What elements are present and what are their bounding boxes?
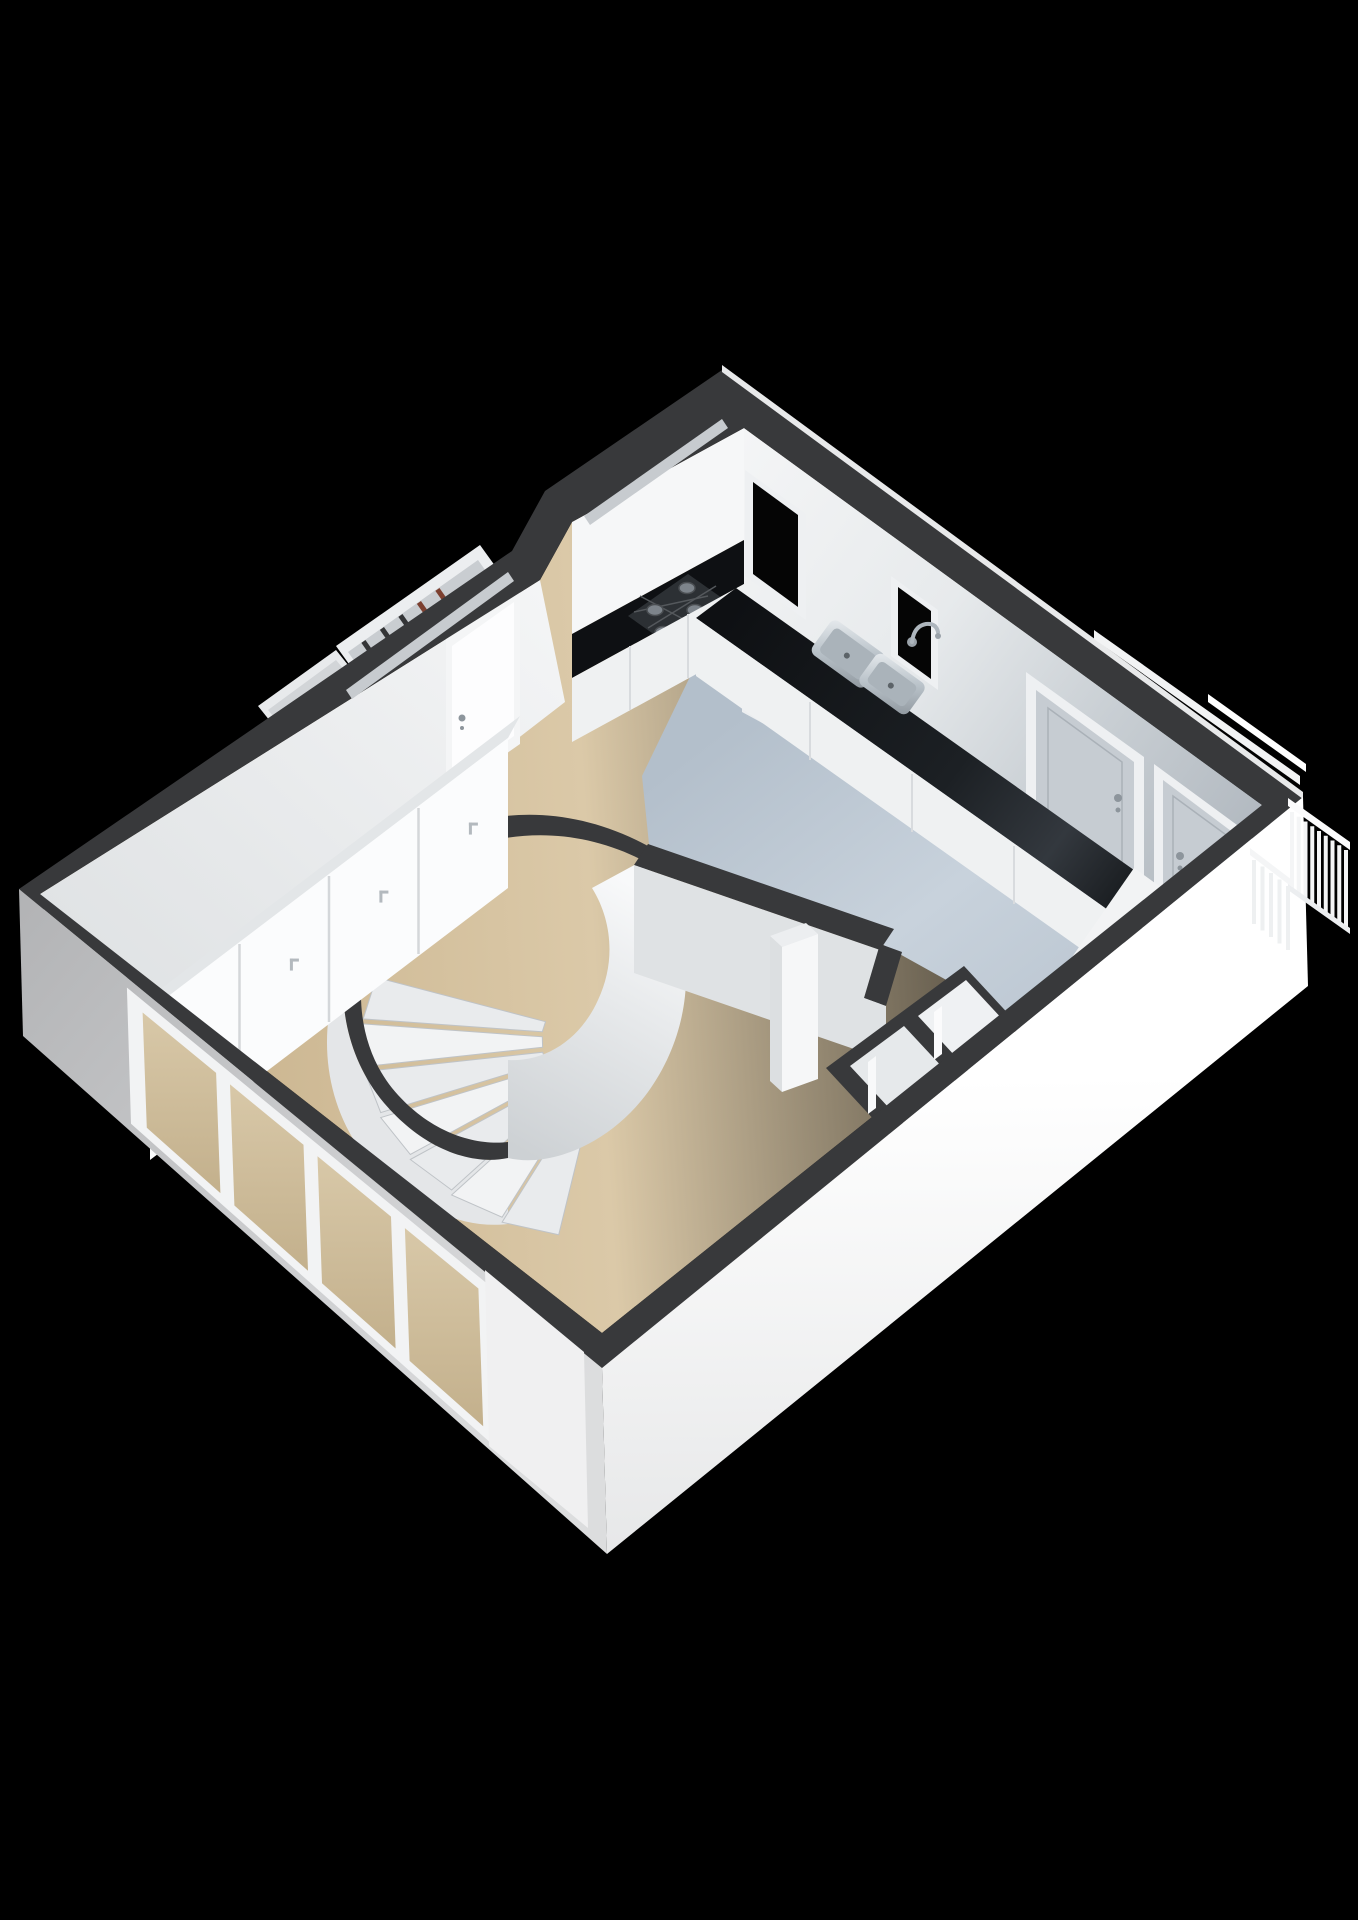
floorplan-3d-render: [0, 0, 1358, 1920]
pillar-face-left: [770, 936, 782, 1092]
hob-burner: [679, 583, 695, 594]
door-keyhole: [460, 726, 464, 730]
railing-baluster: [1286, 886, 1290, 950]
hob-burner: [647, 605, 663, 616]
railing-baluster: [1324, 836, 1328, 914]
door-handle: [1176, 852, 1184, 860]
railing-baluster: [1252, 860, 1256, 924]
railing-baluster: [1317, 831, 1321, 909]
stair-pillar: [770, 923, 818, 1092]
railing-baluster: [1290, 812, 1294, 890]
closet-cell-2-door-edge: [934, 1006, 942, 1060]
railing-baluster: [1310, 826, 1314, 904]
railing-baluster: [1304, 822, 1308, 900]
render-canvas: [0, 0, 1358, 1920]
wardrobe-door-handle: [469, 823, 478, 826]
railing-baluster: [1297, 817, 1301, 895]
railing-baluster: [1278, 880, 1282, 944]
railing-baluster: [1331, 841, 1335, 919]
railing-baluster: [1337, 845, 1341, 923]
door-handle: [1114, 794, 1122, 802]
wardrobe-door-handle: [290, 959, 299, 962]
railing-baluster: [1344, 850, 1348, 928]
railing-baluster: [1269, 873, 1273, 937]
wardrobe-door-handle: [379, 891, 388, 894]
closet-cell-1-door-edge: [868, 1056, 876, 1114]
door-keyhole: [1116, 808, 1121, 813]
door-handle: [459, 715, 466, 722]
pillar-face-right: [782, 934, 818, 1092]
railing-baluster: [1261, 867, 1265, 931]
